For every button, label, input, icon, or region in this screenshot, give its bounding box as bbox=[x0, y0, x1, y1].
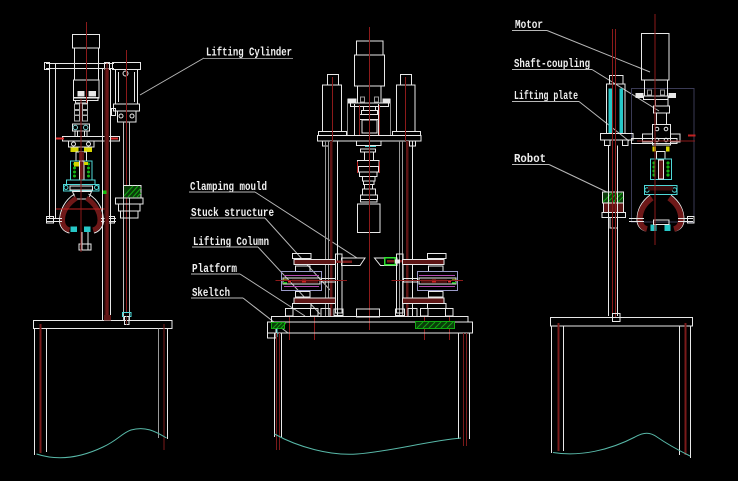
svg-text:Lifting Cylinder: Lifting Cylinder bbox=[206, 47, 292, 60]
